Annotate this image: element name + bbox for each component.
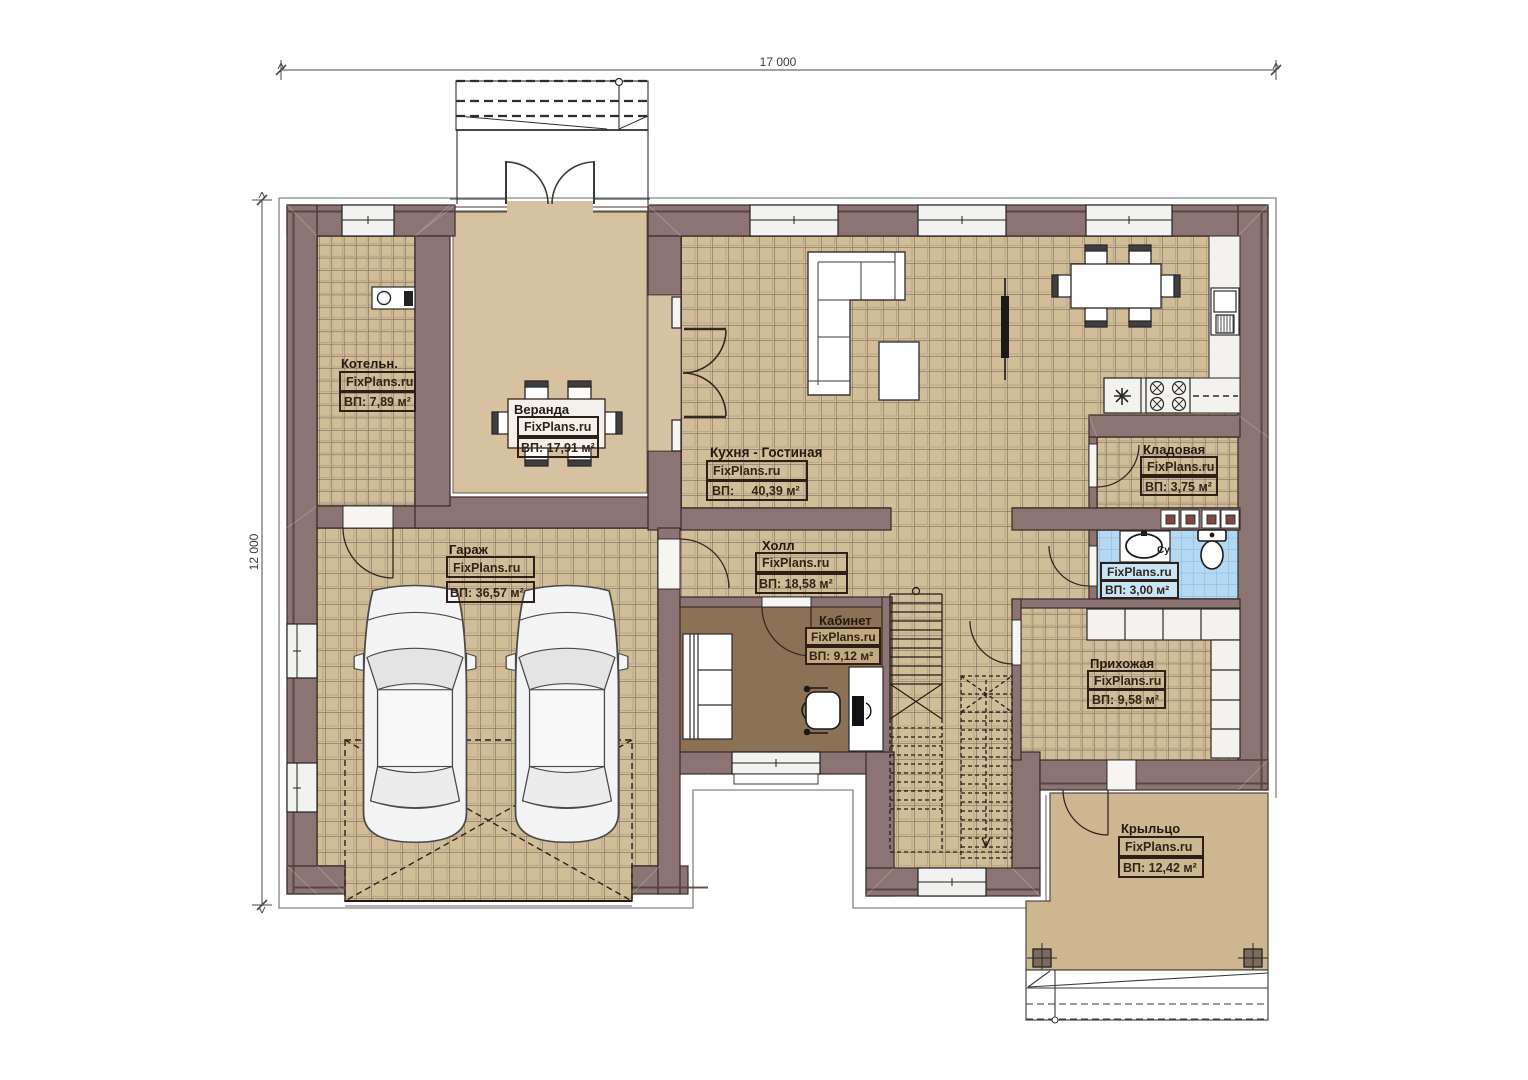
svg-text:Крыльцо: Крыльцо	[1121, 821, 1180, 836]
svg-text:ВП: 40,39 м²: ВП: 40,39 м²	[712, 484, 800, 498]
svg-text:Кладовая: Кладовая	[1143, 442, 1205, 457]
svg-text:FixPlans.ru: FixPlans.ru	[524, 420, 591, 434]
svg-text:Су: Су	[1157, 545, 1170, 556]
svg-text:FixPlans.ru: FixPlans.ru	[1125, 840, 1192, 854]
svg-text:ВП: 9,12 м²: ВП: 9,12 м²	[809, 649, 873, 663]
svg-text:ВП: 3,00 м²: ВП: 3,00 м²	[1105, 583, 1169, 597]
svg-text:ВП: 7,89 м²: ВП: 7,89 м²	[344, 395, 411, 409]
svg-text:ВП: 3,75 м²: ВП: 3,75 м²	[1145, 480, 1212, 494]
svg-text:FixPlans.ru: FixPlans.ru	[1107, 565, 1172, 579]
svg-text:FixPlans.ru: FixPlans.ru	[811, 630, 876, 644]
svg-text:Гараж: Гараж	[449, 542, 489, 557]
svg-text:Кабинет: Кабинет	[819, 613, 872, 628]
svg-text:ВП: 36,57 м²: ВП: 36,57 м²	[450, 586, 524, 600]
svg-text:ВП: 12,42 м²: ВП: 12,42 м²	[1123, 861, 1197, 875]
svg-text:FixPlans.ru: FixPlans.ru	[713, 464, 780, 478]
svg-text:FixPlans.ru: FixPlans.ru	[1094, 674, 1161, 688]
svg-text:Прихожая: Прихожая	[1090, 656, 1154, 671]
svg-text:ВП: 17,91 м²: ВП: 17,91 м²	[521, 441, 595, 455]
svg-text:FixPlans.ru: FixPlans.ru	[762, 556, 829, 570]
svg-text:Кухня - Гостиная: Кухня - Гостиная	[710, 445, 822, 460]
svg-text:17 000: 17 000	[760, 55, 797, 69]
svg-text:FixPlans.ru: FixPlans.ru	[346, 375, 413, 389]
svg-text:ВП: 9,58 м²: ВП: 9,58 м²	[1092, 693, 1159, 707]
svg-text:12 000: 12 000	[247, 533, 261, 570]
svg-text:ВП: 18,58 м²: ВП: 18,58 м²	[759, 577, 833, 591]
svg-text:FixPlans.ru: FixPlans.ru	[1147, 460, 1214, 474]
svg-text:Котельн.: Котельн.	[341, 356, 398, 371]
svg-text:Холл: Холл	[762, 538, 795, 553]
svg-text:Веранда: Веранда	[514, 402, 570, 417]
svg-text:FixPlans.ru: FixPlans.ru	[453, 561, 520, 575]
